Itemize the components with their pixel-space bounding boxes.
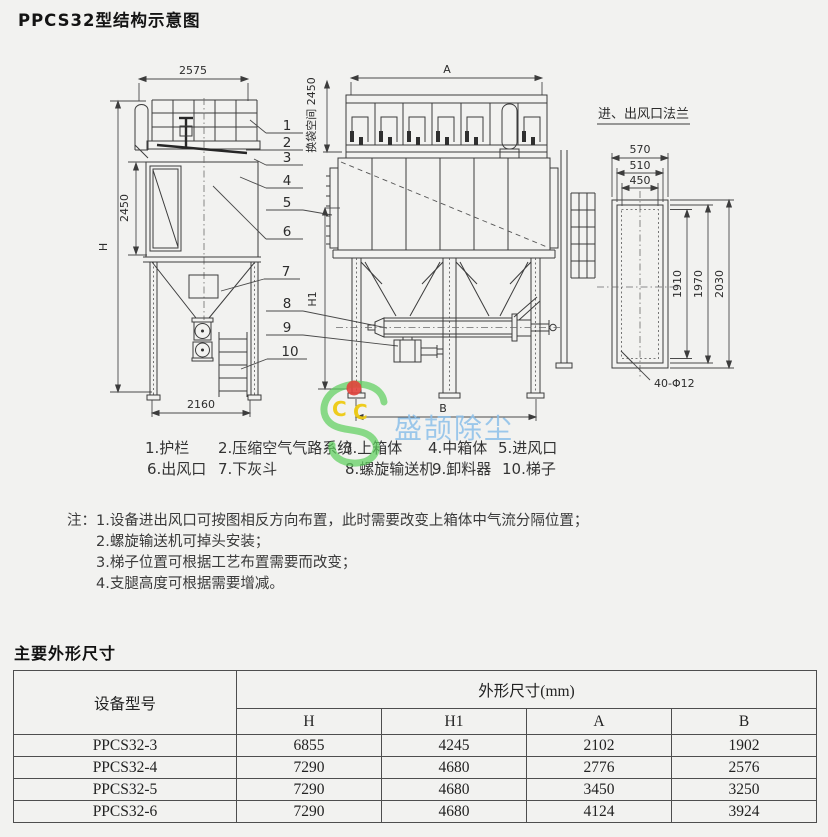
header-model: 设备型号 — [14, 671, 237, 735]
legend-item-8: 8.螺旋输送机 — [345, 458, 434, 479]
pulse-valves — [350, 104, 540, 158]
platform-grid — [571, 193, 595, 278]
support-legs — [348, 258, 544, 398]
cell-H1: 4680 — [382, 757, 527, 779]
dim-570-label: 570 — [630, 143, 651, 156]
legend-item-7: 7.下灰斗 — [218, 458, 277, 479]
callout-7: 7 — [282, 264, 291, 280]
page-root: { "title": "PPCS32型结构示意图", "drawing": { … — [0, 0, 828, 837]
callout-10: 10 — [281, 344, 298, 360]
flange-detail-drawing: 进、出风口法兰 570 510 450 1910 1970 2030 — [597, 107, 734, 390]
table-row: PPCS32-4 7290 4680 2776 2576 — [14, 757, 817, 779]
bolt-count-label: 40-Φ12 — [654, 377, 695, 390]
header-dims: 外形尺寸(mm) — [237, 671, 817, 709]
callout-8: 8 — [283, 296, 292, 312]
legend-item-10: 10.梯子 — [502, 458, 556, 479]
dim-bag-space-label: 换袋空间 2450 — [304, 77, 318, 153]
cell-A: 4124 — [527, 801, 672, 823]
note-line-2: 2.螺旋输送机可掉头安装； — [67, 532, 588, 553]
dim-1910-label: 1910 — [671, 270, 684, 298]
cell-H: 7290 — [237, 801, 382, 823]
header-col-B: B — [672, 709, 817, 735]
header-col-H1: H1 — [382, 709, 527, 735]
cell-H1: 4680 — [382, 779, 527, 801]
note-line-1: 1.设备进出风口可按图相反方向布置，此时需要改变上箱体中气流分隔位置； — [96, 513, 588, 529]
dim-A-label: A — [443, 63, 451, 76]
callout-4: 4 — [283, 173, 292, 189]
callout-6: 6 — [283, 224, 292, 240]
flange-view-title: 进、出风口法兰 — [598, 107, 689, 122]
dim-B-label: B — [439, 402, 447, 415]
cell-B: 2576 — [672, 757, 817, 779]
callout-5: 5 — [283, 195, 292, 211]
callout-1: 1 — [283, 118, 292, 134]
callout-labels: 1 2 3 4 5 6 7 8 9 10 — [213, 118, 398, 369]
dim-510-label: 510 — [630, 159, 651, 172]
table-row: PPCS32-6 7290 4680 4124 3924 — [14, 801, 817, 823]
dimensions-table: 设备型号 外形尺寸(mm) H H1 A B PPCS32-3 6855 424… — [13, 670, 817, 823]
cell-B: 3250 — [672, 779, 817, 801]
notes-label: 注： — [67, 513, 96, 529]
cell-model: PPCS32-6 — [14, 801, 237, 823]
cell-H1: 4680 — [382, 801, 527, 823]
cell-A: 2776 — [527, 757, 672, 779]
dimensions-section-title: 主要外形尺寸 — [14, 640, 116, 664]
dim-450-label: 450 — [630, 174, 651, 187]
legend-item-2: 2.压缩空气气路系统 — [218, 437, 352, 458]
cell-A: 2102 — [527, 735, 672, 757]
side-view-drawing: H 2575 2450 — [97, 64, 261, 417]
legend-item-3: 3.上箱体 — [343, 437, 402, 458]
dim-2575-label: 2575 — [179, 64, 207, 77]
front-view-drawing: A 换袋空间 2450 — [304, 63, 595, 421]
cell-H: 7290 — [237, 779, 382, 801]
note-line-3: 3.梯子位置可根据工艺布置需要而改变； — [67, 553, 588, 574]
table-row: PPCS32-3 6855 4245 2102 1902 — [14, 735, 817, 757]
legend-item-1: 1.护栏 — [145, 437, 189, 458]
legend-item-9: 9.卸料器 — [432, 458, 491, 479]
note-line-4: 4.支腿高度可根据需要增减。 — [67, 574, 588, 595]
cell-H1: 4245 — [382, 735, 527, 757]
cell-H: 7290 — [237, 757, 382, 779]
legend-item-6: 6.出风口 — [147, 458, 206, 479]
cell-B: 1902 — [672, 735, 817, 757]
cell-model: PPCS32-4 — [14, 757, 237, 779]
dim-2160-label: 2160 — [187, 398, 215, 411]
dim-H1-label: H1 — [306, 291, 319, 306]
callout-9: 9 — [283, 320, 292, 336]
discharge-unit — [394, 337, 443, 362]
legend-item-4: 4.中箱体 — [428, 437, 487, 458]
dim-2450-label: 2450 — [118, 194, 131, 222]
header-col-H: H — [237, 709, 382, 735]
cell-model: PPCS32-3 — [14, 735, 237, 757]
legend-item-5: 5.进风口 — [498, 437, 557, 458]
dim-H-label: H — [97, 243, 110, 251]
cell-H: 6855 — [237, 735, 382, 757]
cell-model: PPCS32-5 — [14, 779, 237, 801]
table-header-row-1: 设备型号 外形尺寸(mm) — [14, 671, 817, 709]
cell-B: 3924 — [672, 801, 817, 823]
screw-conveyor — [336, 297, 560, 341]
table-row: PPCS32-5 7290 4680 3450 3250 — [14, 779, 817, 801]
dim-2030-label: 2030 — [713, 270, 726, 298]
notes-block: 注：1.设备进出风口可按图相反方向布置，此时需要改变上箱体中气流分隔位置； 2.… — [67, 511, 588, 595]
callout-3: 3 — [283, 150, 292, 166]
cell-A: 3450 — [527, 779, 672, 801]
callout-2: 2 — [283, 135, 292, 151]
structure-diagram: H 2575 2450 — [0, 0, 828, 500]
dim-1970-label: 1970 — [692, 270, 705, 298]
header-col-A: A — [527, 709, 672, 735]
